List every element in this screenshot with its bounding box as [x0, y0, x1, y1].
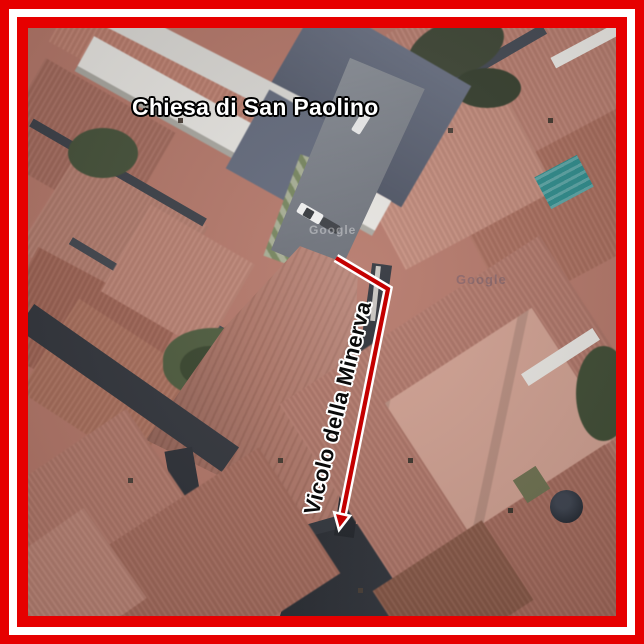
frame-middle-white: Chiesa di San Paolino Vicolo della Miner…: [9, 9, 635, 635]
frame-outer-red: Chiesa di San Paolino Vicolo della Miner…: [0, 0, 644, 644]
frame-inner-red: Chiesa di San Paolino Vicolo della Miner…: [17, 17, 627, 627]
route-arrow-head: [334, 512, 350, 530]
church-label: Chiesa di San Paolino: [132, 94, 379, 121]
aerial-map-lucca: Chiesa di San Paolino Vicolo della Miner…: [28, 28, 616, 616]
framed-aerial-photo: Chiesa di San Paolino Vicolo della Miner…: [0, 0, 644, 644]
